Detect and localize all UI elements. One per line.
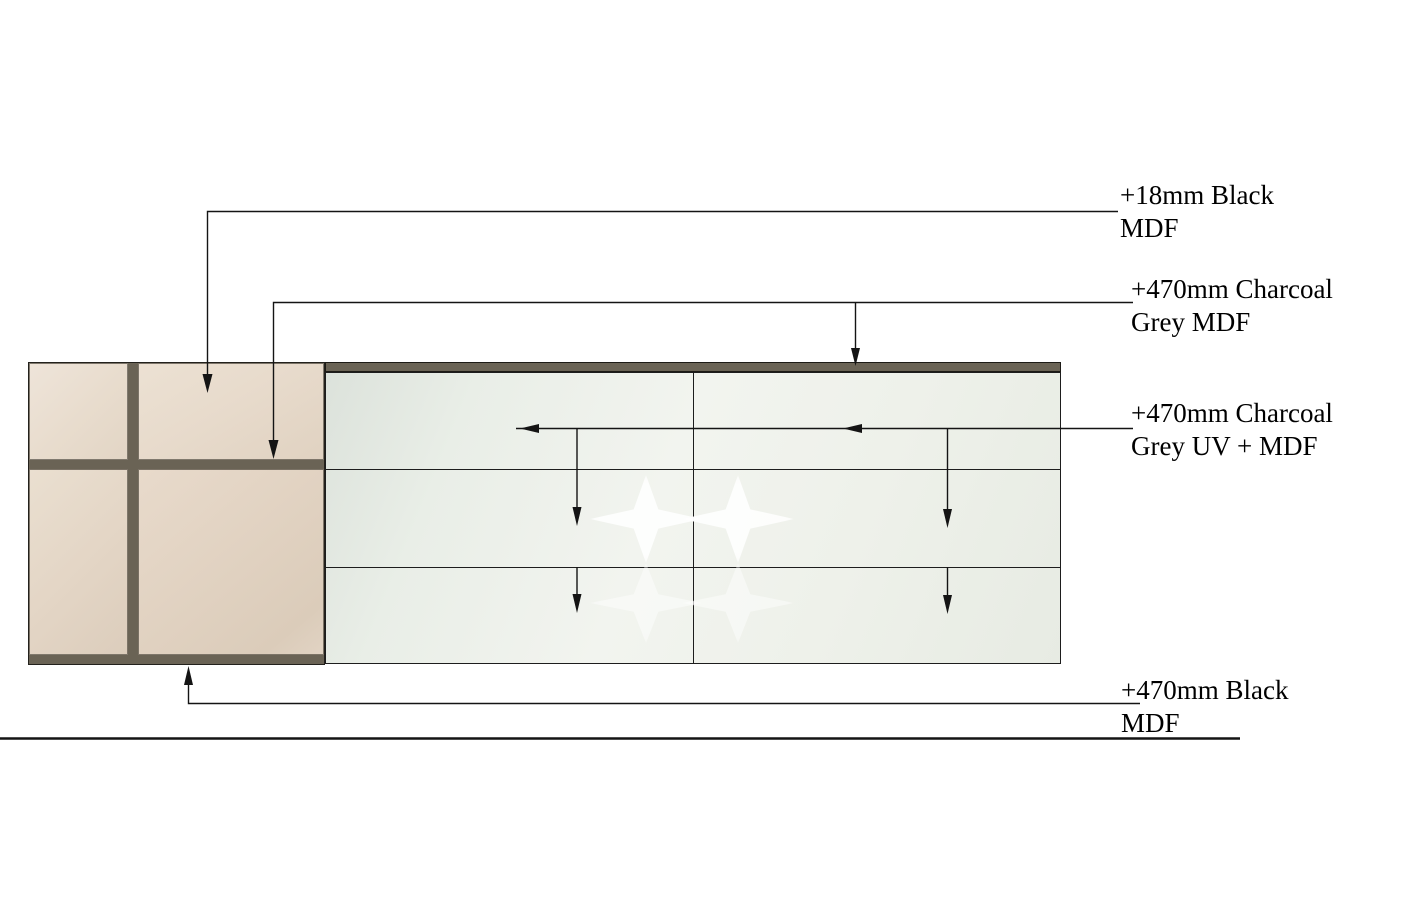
annotation-line: Grey MDF — [1131, 306, 1333, 339]
left-cabinet-block — [28, 362, 325, 665]
cabinet-panel-bottom-left — [29, 469, 128, 655]
specular-highlight — [682, 563, 794, 643]
annotation-line: +470mm Charcoal — [1131, 397, 1333, 430]
annotation-line: +470mm Charcoal — [1131, 273, 1333, 306]
cabinet-panel-bottom-right — [138, 469, 324, 655]
cabinet-elevation-drawing: +18mm Black MDF +470mm Charcoal Grey MDF… — [0, 0, 1423, 921]
specular-highlight — [682, 475, 794, 563]
annotation-470mm-black-mdf: +470mm Black MDF — [1121, 674, 1288, 740]
leader-470mm-black-mdf — [184, 666, 1140, 704]
cabinet-panel-top-left — [29, 363, 128, 460]
annotation-line: +18mm Black — [1120, 179, 1274, 212]
annotation-18mm-black-mdf: +18mm Black MDF — [1120, 179, 1274, 245]
annotation-line: Grey UV + MDF — [1131, 430, 1333, 463]
arrow-up-icon — [184, 666, 193, 685]
uv-panel-grid — [325, 372, 1061, 664]
cabinet-panel-top-right — [138, 363, 324, 460]
charcoal-top-rail — [325, 362, 1061, 372]
annotation-line: MDF — [1121, 707, 1288, 740]
annotation-line: +470mm Black — [1121, 674, 1288, 707]
annotation-470mm-charcoal-grey-uv-mdf: +470mm Charcoal Grey UV + MDF — [1131, 397, 1333, 463]
annotation-line: MDF — [1120, 212, 1274, 245]
annotation-470mm-charcoal-grey-mdf: +470mm Charcoal Grey MDF — [1131, 273, 1333, 339]
